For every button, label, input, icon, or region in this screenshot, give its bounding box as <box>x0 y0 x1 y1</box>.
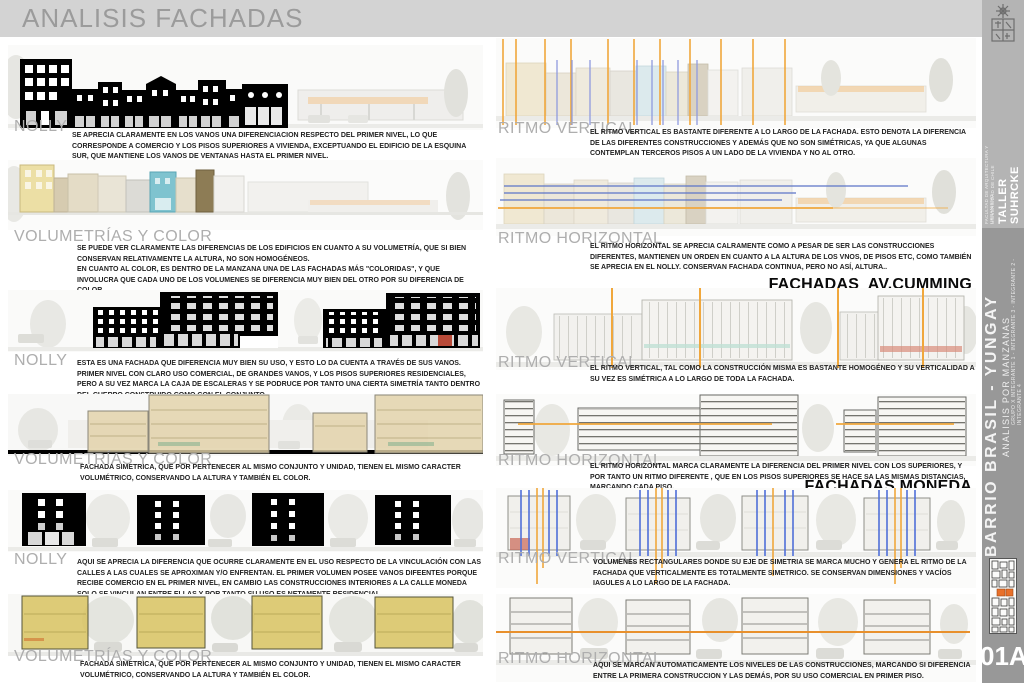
volumetrias-text-1: SE PUEDE VER CLARAMENTE LAS DIFERENCIAS … <box>77 244 482 297</box>
nolly-figure-3 <box>8 490 483 552</box>
ritmo-vertical-text-cumming: EL RITMO VERTICAL, TAL COMO LA CONSTRUCC… <box>590 364 975 385</box>
project-title: BARRIO BRASIL - YUNGAY <box>983 247 1001 557</box>
university-name: UNIVERSIDAD DE CHILE <box>990 140 995 224</box>
nolly-label-3: NOLLY <box>14 551 67 569</box>
nolly-text-1: SE APRECIA CLARAMENTE EN LOS VANOS UNA D… <box>72 131 482 163</box>
nolly-label-1: NOLLY <box>14 118 67 136</box>
nolly-label-2: NOLLY <box>14 352 67 370</box>
nolly-figure-1 <box>8 45 483 130</box>
presentation-board: ANALISIS FACHADAS <box>0 0 1024 683</box>
studio-name: TALLER SUHRCKE <box>997 138 1021 224</box>
volumetrias-text-3: FACHADA SIMETRICA, QUE POR PERTENECER AL… <box>80 660 475 681</box>
group-members: GRUPO X INTEGRANTE 1 - INTEGRANTE 3 - IN… <box>1011 237 1023 425</box>
ritmo-horizontal-text-brasil: EL RITMO HORIZONTAL SE APRECIA CALRAMENT… <box>590 242 975 274</box>
nolly-figure-2 <box>8 290 483 352</box>
ritmo-horizontal-text-moneda: AQUI SE MARCAN AUTOMATICAMENTE LOS NIVEL… <box>593 661 975 682</box>
volumetria-figure-2 <box>8 394 483 456</box>
project-subtitle: ANALISIS POR MANZANAS <box>1001 300 1011 457</box>
volumetrias-text-2: FACHADA SIMETRICA, QUE POR PERTENECER AL… <box>80 463 475 484</box>
sheet-number: 01A <box>980 641 1024 672</box>
volumetria-figure-3 <box>8 594 483 656</box>
ritmo-vertical-text-moneda: VOLUMENES RECTANGULARES DONDE SU EJE DE … <box>593 558 975 590</box>
university-crest-icon <box>989 3 1017 43</box>
brasil-ritmo-vertical-figure <box>496 38 976 128</box>
location-map-thumbnail <box>989 558 1017 634</box>
volumetria-figure-1 <box>8 160 483 230</box>
brasil-ritmo-horizontal-figure <box>496 158 976 236</box>
ritmo-vertical-text-brasil: EL RITMO VERTICAL ES BASTANTE DIFERENTE … <box>590 128 975 160</box>
page-title: ANALISIS FACHADAS <box>22 3 303 34</box>
